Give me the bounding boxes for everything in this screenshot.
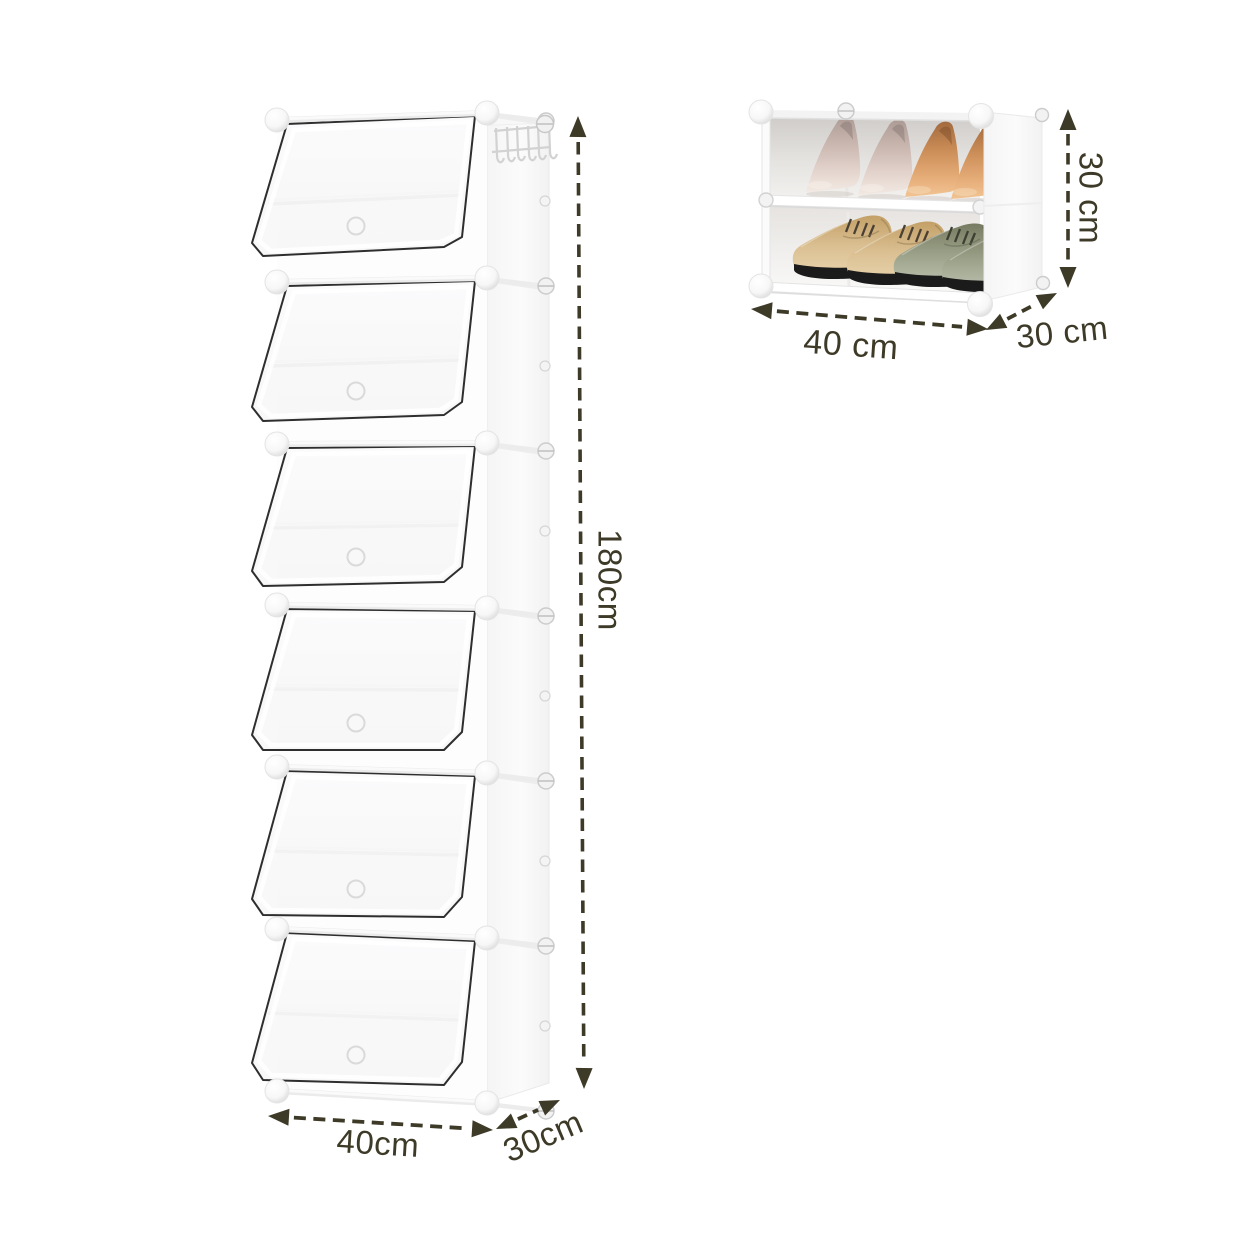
svg-text:40 cm: 40 cm (802, 323, 900, 368)
svg-text:40cm: 40cm (336, 1122, 421, 1164)
svg-text:180cm: 180cm (592, 529, 629, 631)
svg-text:30 cm: 30 cm (1073, 152, 1110, 244)
